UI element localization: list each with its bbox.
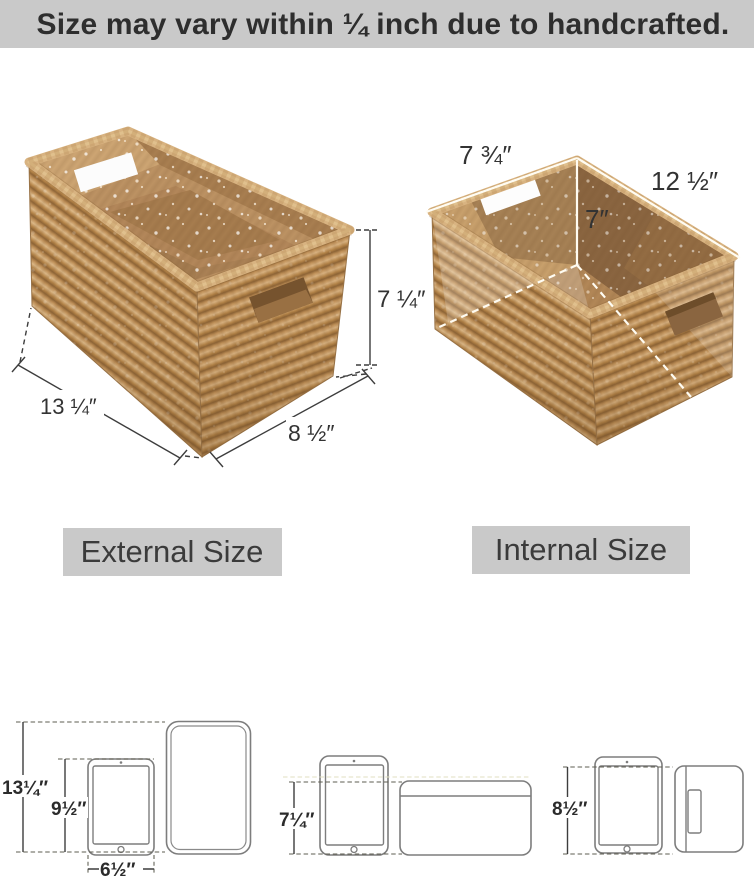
svg-text:7 ¾″: 7 ¾″ bbox=[459, 140, 512, 170]
svg-text:7¼″: 7¼″ bbox=[279, 810, 315, 831]
svg-text:8 ½″: 8 ½″ bbox=[288, 420, 335, 446]
svg-text:Size may vary within ¼ inch du: Size may vary within ¼ inch due to handc… bbox=[37, 8, 730, 41]
svg-text:13 ¼″: 13 ¼″ bbox=[40, 394, 97, 419]
svg-text:13¼″: 13¼″ bbox=[2, 778, 48, 799]
svg-text:6½″: 6½″ bbox=[100, 860, 136, 879]
svg-text:12 ½″: 12 ½″ bbox=[651, 166, 718, 196]
svg-text:9½″: 9½″ bbox=[51, 799, 87, 820]
svg-text:7 ¼″: 7 ¼″ bbox=[377, 286, 426, 313]
svg-text:8½″: 8½″ bbox=[552, 799, 588, 820]
svg-text:7″: 7″ bbox=[585, 204, 609, 234]
svg-text:External Size: External Size bbox=[81, 534, 264, 569]
svg-text:Internal Size: Internal Size bbox=[495, 532, 667, 567]
